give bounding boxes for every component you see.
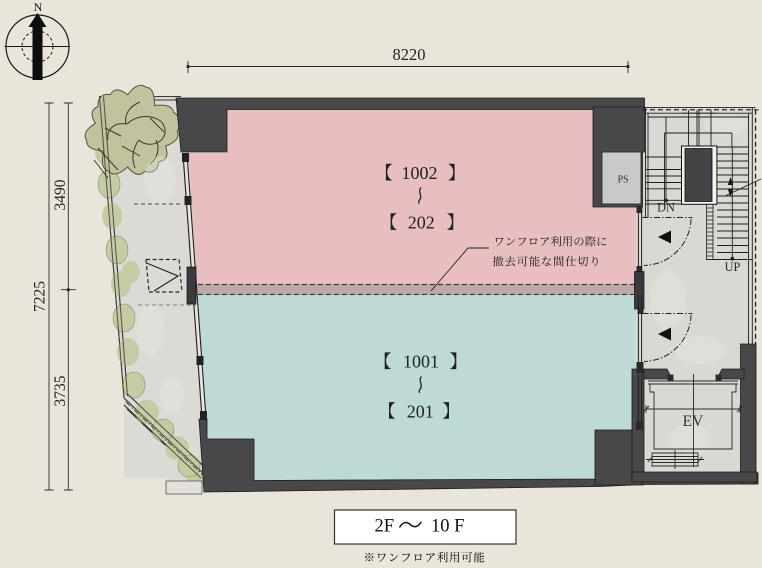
svg-text:3490: 3490	[52, 179, 69, 210]
svg-text:1002: 1002	[402, 163, 438, 183]
svg-text:202: 202	[408, 212, 435, 232]
svg-text:DN: DN	[657, 201, 675, 215]
svg-text:PS: PS	[617, 175, 628, 186]
svg-text:7225: 7225	[32, 281, 49, 312]
svg-text:10 F: 10 F	[431, 517, 464, 537]
svg-text:UP: UP	[725, 260, 741, 274]
svg-text:N: N	[34, 0, 43, 14]
svg-text:3735: 3735	[52, 375, 69, 406]
svg-text:8220: 8220	[393, 45, 426, 64]
svg-text:1001: 1001	[403, 352, 439, 372]
svg-text:EV: EV	[683, 413, 704, 430]
svg-text:2F: 2F	[374, 517, 394, 537]
svg-text:201: 201	[407, 401, 434, 421]
